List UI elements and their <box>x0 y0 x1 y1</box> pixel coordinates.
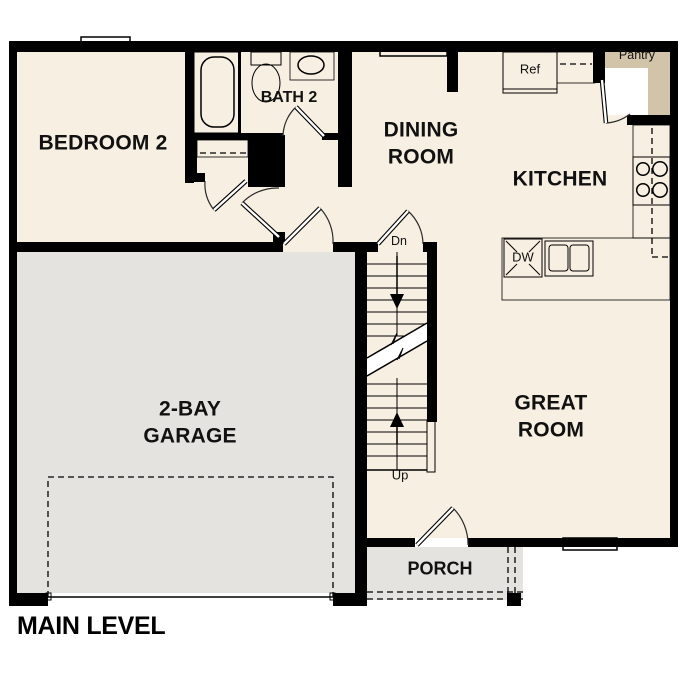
room-label-great-1: GREAT <box>515 391 588 418</box>
wall-garage-bottom <box>9 593 48 606</box>
wall-tub-divider <box>238 51 241 133</box>
pantry-shelf-right <box>648 68 670 115</box>
wall-greatroom-bottom <box>468 538 678 547</box>
room-label-kitchen: KITCHEN <box>513 167 608 194</box>
room-label-bedroom2: BEDROOM 2 <box>39 131 168 158</box>
room-label-garage-2: GARAGE <box>143 424 236 451</box>
room-label-dining-2: ROOM <box>388 145 454 172</box>
pantry-floor <box>605 68 648 115</box>
label-stairs-down: Dn <box>391 233 407 249</box>
wall-garage-top <box>9 242 283 252</box>
wall-stairs-right <box>427 245 437 422</box>
room-label-porch: PORCH <box>407 557 472 580</box>
room-label-garage-1: 2-BAY <box>159 397 221 424</box>
wall-pantry-left <box>593 42 605 83</box>
wall-dining-kitchen-stub <box>447 42 458 92</box>
room-label-dining-1: DINING <box>384 118 459 145</box>
floor-plan: BEDROOM 2 BATH 2 DINING ROOM KITCHEN GRE… <box>0 0 687 687</box>
wall-greatroom-bottom <box>363 538 415 547</box>
porch-post <box>507 593 521 606</box>
room-label-pantry: Pantry <box>619 47 655 63</box>
wall-garage-bottom <box>333 593 367 606</box>
floor-plan-drawing <box>0 0 687 687</box>
wall-closet-stub <box>185 173 205 182</box>
label-refrigerator: Ref <box>520 62 540 79</box>
label-dishwasher: DW <box>512 250 534 267</box>
wall-garage-right <box>355 242 367 593</box>
wall-dining-left <box>338 42 352 187</box>
label-stairs-up: Up <box>392 468 409 485</box>
wall-closet-right <box>248 135 285 187</box>
wall-pantry-bottom <box>627 115 678 125</box>
room-label-bath2: BATH 2 <box>261 88 318 108</box>
wall-exterior-left <box>9 41 17 606</box>
room-label-great-2: ROOM <box>518 418 584 445</box>
page-title: MAIN LEVEL <box>17 612 165 641</box>
